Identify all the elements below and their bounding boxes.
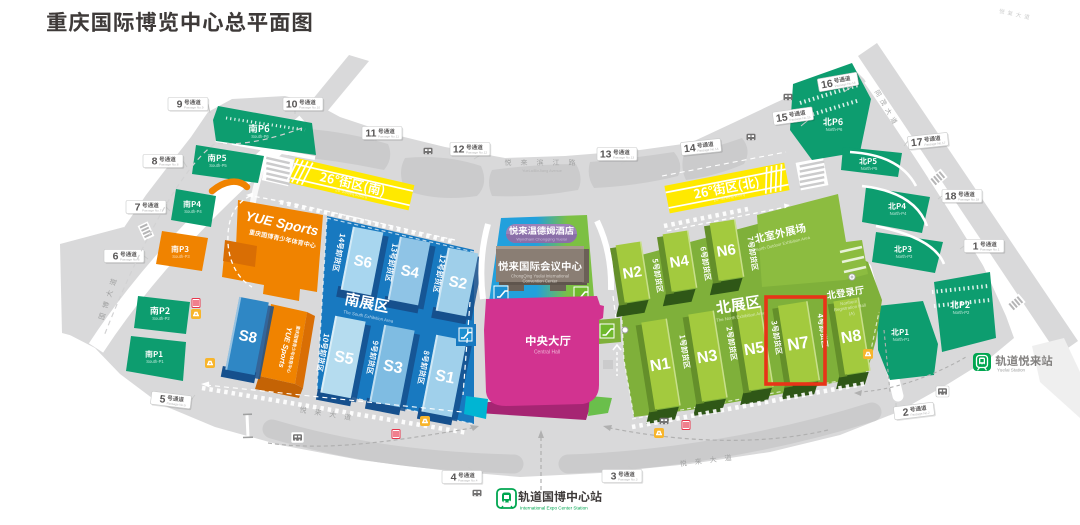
svg-text:N8: N8 [840,327,863,347]
svg-text:13: 13 [600,149,612,161]
svg-text:N2: N2 [621,263,643,283]
svg-text:South-P3: South-P3 [172,254,190,259]
svg-text:4: 4 [451,472,457,484]
svg-text:N5: N5 [743,339,766,359]
svg-text:Passage No.1: Passage No.1 [980,248,1000,252]
svg-text:Wyndham Chongqing Yuelai: Wyndham Chongqing Yuelai [516,237,566,242]
svg-text:N7: N7 [786,333,810,355]
svg-text:7: 7 [135,202,141,214]
svg-text:North-P3: North-P3 [896,254,913,259]
svg-text:15: 15 [775,111,788,125]
svg-text:Passage No.7: Passage No.7 [142,209,162,213]
svg-text:S8: S8 [237,327,258,347]
svg-text:17: 17 [910,136,923,149]
svg-text:South-P5: South-P5 [209,163,227,168]
svg-text:North-P5: North-P5 [861,166,878,171]
svg-text:Passage No.4: Passage No.4 [458,479,478,483]
svg-text:Central Hall: Central Hall [534,350,560,356]
svg-text:Passage No.12: Passage No.12 [466,151,487,155]
svg-text:9: 9 [177,99,183,111]
svg-text:11: 11 [365,128,376,140]
svg-text:Passage No.11: Passage No.11 [378,135,399,139]
svg-text:South-P6: South-P6 [251,134,269,139]
svg-text:Passage No.6: Passage No.6 [120,258,140,262]
svg-text:YueLaiBinJiang Avenue: YueLaiBinJiang Avenue [522,169,562,173]
svg-text:N6: N6 [715,241,737,261]
svg-text:10: 10 [286,99,298,111]
svg-text:Passage No.3: Passage No.3 [618,478,638,482]
svg-text:South-P2: South-P2 [152,316,170,321]
svg-text:South-P4: South-P4 [184,209,202,214]
svg-text:Yuelai Station: Yuelai Station [997,368,1026,373]
svg-text:International Expo Center Stat: International Expo Center Station [520,506,588,511]
svg-text:14: 14 [683,142,696,155]
svg-text:8: 8 [152,156,158,168]
svg-text:3: 3 [611,471,617,483]
svg-text:S6: S6 [352,252,373,272]
svg-text:18: 18 [945,191,957,203]
svg-text:Passage No.13: Passage No.13 [613,156,634,160]
svg-text:N3: N3 [696,347,719,367]
svg-text:Passage No.18: Passage No.18 [958,198,979,202]
svg-text:N4: N4 [668,252,690,272]
svg-text:North-P2: North-P2 [953,310,970,315]
svg-text:Passage No.8: Passage No.8 [159,163,179,167]
svg-text:North-P4: North-P4 [890,211,907,216]
svg-text:6: 6 [113,251,119,263]
svg-text:N1: N1 [649,355,672,375]
svg-text:1: 1 [973,241,979,253]
svg-text:Passage No.9: Passage No.9 [184,106,204,110]
svg-text:North-P1: North-P1 [893,337,910,342]
svg-text:S2: S2 [447,273,468,293]
svg-text:16: 16 [820,78,834,92]
svg-text:North-P6: North-P6 [826,127,843,132]
svg-text:Passage No.10: Passage No.10 [299,106,320,110]
svg-text:South-P1: South-P1 [146,359,164,364]
svg-text:Convention Center: Convention Center [523,279,559,284]
svg-text:12: 12 [453,144,465,156]
